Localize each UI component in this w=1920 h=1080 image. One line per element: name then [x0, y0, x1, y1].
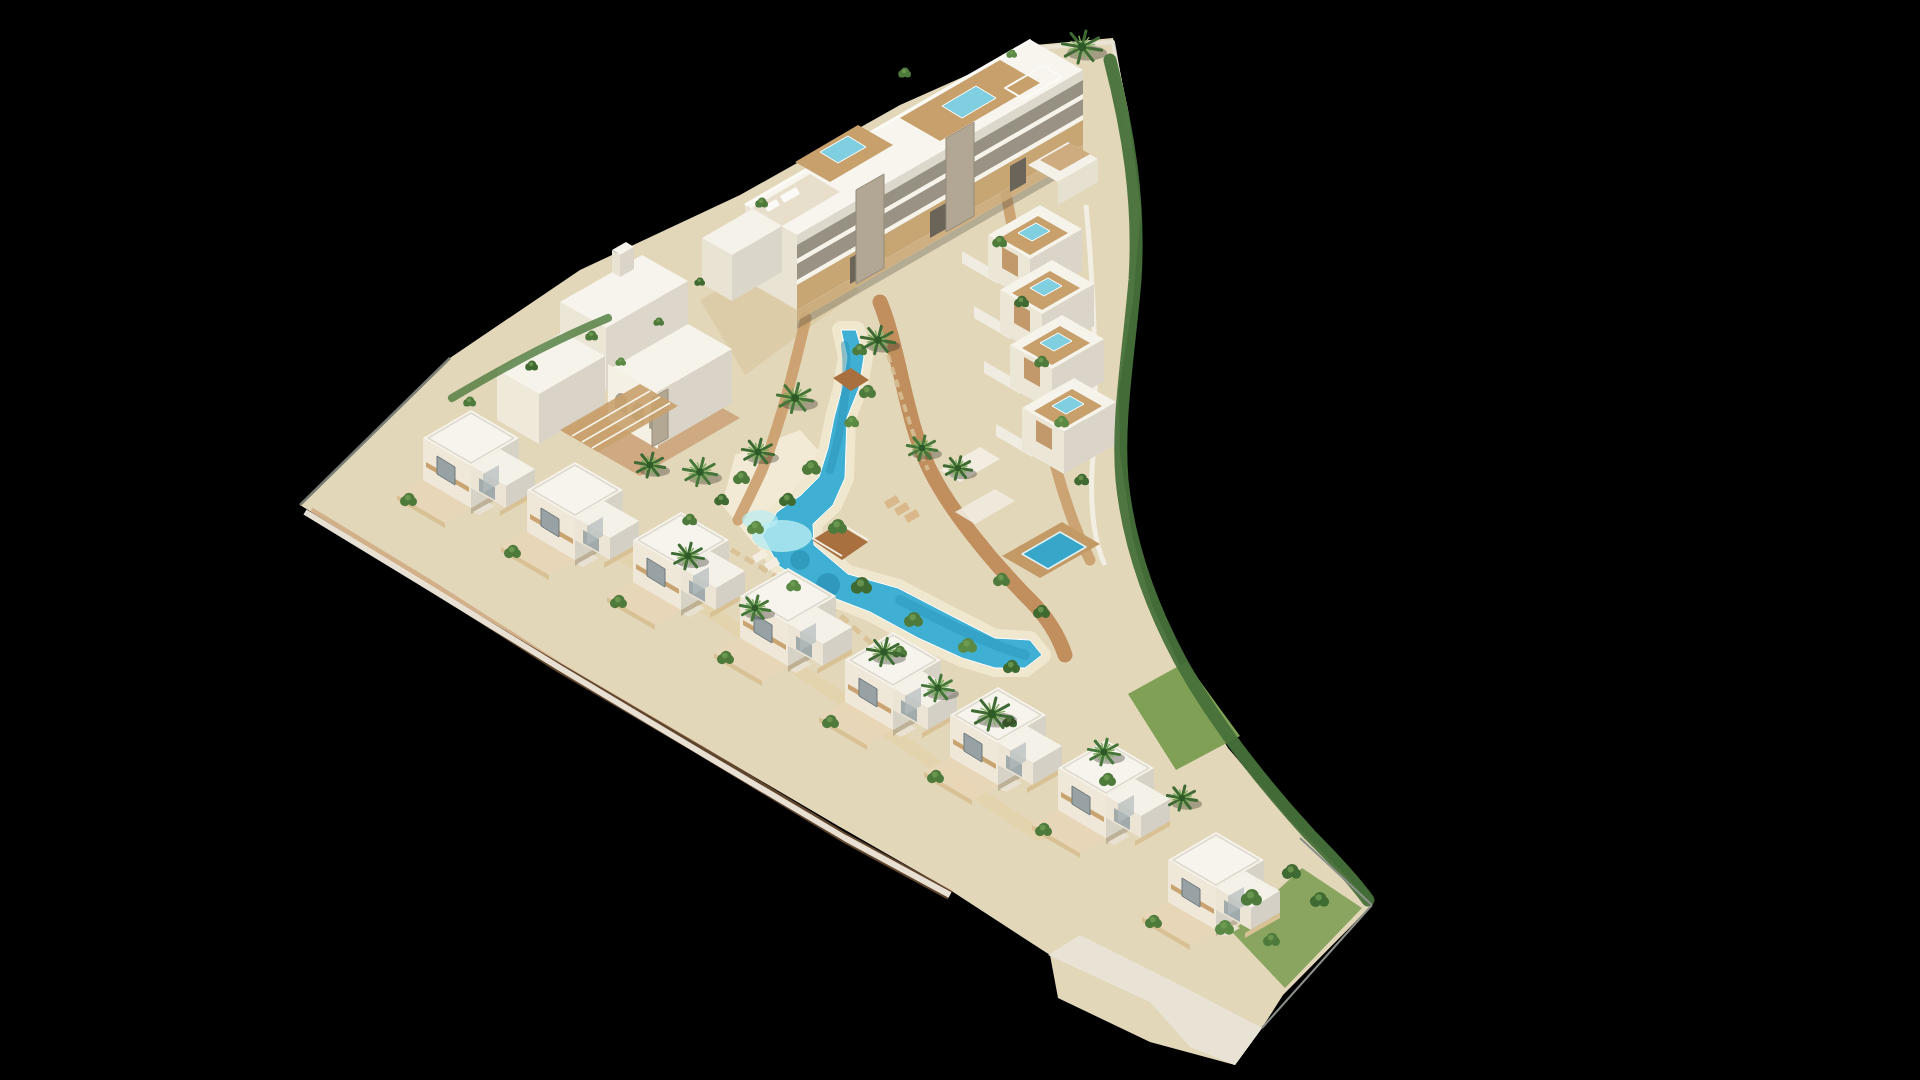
vegetation-palm-crown [988, 710, 997, 719]
vegetation-bush-highlight [1019, 297, 1024, 302]
vegetation-bush-highlight [687, 515, 692, 520]
vegetation-bush-highlight [834, 521, 840, 527]
vegetation-bush-highlight [698, 279, 702, 283]
vegetation-palm-crown [1179, 795, 1186, 802]
vegetation-bush-highlight [964, 640, 970, 646]
vegetation-palm-crown [647, 462, 654, 469]
vegetation-bush-highlight [857, 580, 864, 587]
apartment-slab-stone-pillar-2 [946, 122, 974, 232]
vegetation-bush-highlight [997, 237, 1002, 242]
aerial-render-svg [0, 0, 1920, 1080]
vegetation-bush-highlight [1008, 662, 1014, 668]
vegetation-palm-crown [934, 684, 941, 691]
vegetation-bush-highlight [657, 319, 661, 323]
villas-2-garden-bush-highlight [615, 597, 621, 603]
vegetation-bush-highlight [784, 495, 790, 501]
vegetation-bush-highlight [619, 359, 623, 363]
villas-0-garden-bush-highlight [405, 495, 411, 501]
vegetation-bush-highlight [738, 473, 744, 479]
villas-4-garden-bush-highlight [827, 717, 833, 723]
villas-5-garden-bush-highlight [932, 772, 938, 778]
vegetation-bush-highlight [808, 462, 814, 468]
vegetation-palm-crown [880, 648, 887, 655]
vegetation-bush-highlight [1104, 775, 1110, 781]
vegetation-bush-highlight [1288, 866, 1294, 872]
villas-7-garden-bush-highlight [1150, 917, 1156, 923]
vegetation-palm-crown [919, 445, 926, 452]
vegetation-bush-highlight [1039, 357, 1044, 362]
scene-root [300, 31, 1372, 1065]
vegetation-bush-highlight [864, 387, 870, 393]
vegetation-bush-highlight [719, 495, 724, 500]
vegetation-bush-highlight [467, 398, 471, 402]
render-stage [0, 0, 1920, 1080]
villas-6-garden-bush-highlight [1040, 825, 1046, 831]
vegetation-palm-crown [874, 336, 881, 343]
vegetation-bush-highlight [1221, 922, 1227, 928]
vegetation-palm-crown [1100, 748, 1107, 755]
vegetation-bush-highlight [529, 362, 533, 366]
vegetation-bush-highlight [910, 614, 916, 620]
vegetation-bush-highlight [752, 523, 758, 529]
pool-pool-shade-blob2 [790, 550, 810, 570]
vegetation-palm-crown [696, 468, 703, 475]
vegetation-bush-highlight [897, 647, 902, 652]
vegetation-bush-highlight [1059, 417, 1064, 422]
vegetation-bush-highlight [1247, 892, 1254, 899]
vegetation-bush-highlight [1010, 51, 1014, 55]
villas-3-garden-bush-highlight [722, 653, 728, 659]
vegetation-palm-crown [754, 448, 761, 455]
vegetation-bush-highlight [998, 575, 1004, 581]
vegetation-bush-highlight [759, 199, 763, 203]
vegetation-bush-highlight [1268, 935, 1274, 941]
vegetation-bush-highlight [849, 417, 854, 422]
vegetation-palm-crown [752, 605, 759, 612]
villas-1-garden-bush-highlight [509, 547, 515, 553]
vegetation-palm-crown [791, 394, 799, 402]
vegetation-bush-highlight [1038, 607, 1044, 613]
apartment-slab-stone-pillar-1 [856, 174, 884, 284]
vegetation-palm-crown [684, 552, 691, 559]
vegetation-bush-highlight [1079, 475, 1084, 480]
vegetation-bush-highlight [857, 345, 862, 350]
vegetation-bush-highlight [791, 581, 796, 586]
vegetation-palm-crown [1078, 43, 1087, 52]
vegetation-palm-crown [955, 465, 961, 471]
vegetation-bush-highlight [902, 69, 906, 73]
vegetation-bush-highlight [589, 332, 593, 336]
vegetation-bush-highlight [1316, 894, 1322, 900]
